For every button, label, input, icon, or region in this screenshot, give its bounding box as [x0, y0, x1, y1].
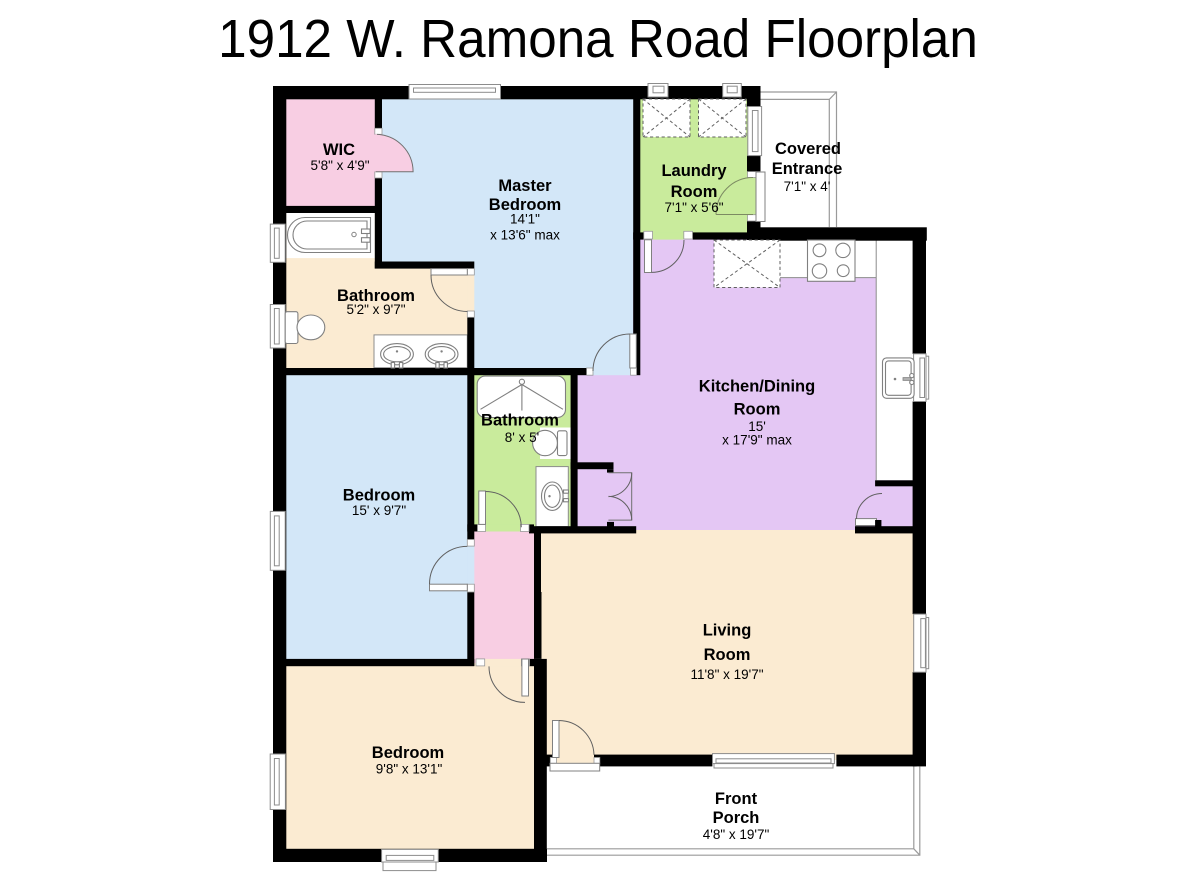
- svg-text:Laundry: Laundry: [661, 162, 727, 180]
- svg-text:Kitchen/Dining: Kitchen/Dining: [699, 378, 815, 396]
- svg-text:Bedroom: Bedroom: [343, 487, 415, 505]
- svg-text:5'8" x 4'9": 5'8" x 4'9": [310, 158, 369, 173]
- svg-text:1912 W. Ramona Road Floorplan: 1912 W. Ramona Road Floorplan: [218, 9, 978, 70]
- svg-text:5'2" x 9'7": 5'2" x 9'7": [346, 302, 405, 317]
- svg-text:x 17'9" max: x 17'9" max: [722, 433, 792, 448]
- svg-text:Room: Room: [671, 183, 718, 201]
- svg-text:15' x 9'7": 15' x 9'7": [352, 503, 406, 518]
- svg-text:7'1" x 5'6": 7'1" x 5'6": [664, 200, 723, 215]
- svg-text:Porch: Porch: [713, 809, 760, 827]
- svg-text:7'1" x 4': 7'1" x 4': [784, 179, 831, 194]
- svg-text:Bedroom: Bedroom: [372, 744, 444, 762]
- svg-text:4'8" x 19'7": 4'8" x 19'7": [703, 827, 770, 842]
- svg-text:Entrance: Entrance: [772, 160, 843, 178]
- svg-text:Living: Living: [703, 622, 752, 640]
- svg-text:Room: Room: [734, 401, 781, 419]
- svg-text:14'1": 14'1": [510, 212, 540, 227]
- svg-text:Front: Front: [715, 790, 758, 808]
- svg-text:WIC: WIC: [323, 141, 355, 159]
- svg-text:Room: Room: [704, 646, 751, 664]
- svg-text:Bathroom: Bathroom: [481, 412, 559, 430]
- svg-text:9'8" x 13'1": 9'8" x 13'1": [376, 762, 443, 777]
- svg-text:Covered: Covered: [775, 140, 841, 158]
- svg-text:8' x 5': 8' x 5': [505, 430, 539, 445]
- svg-text:11'8" x 19'7": 11'8" x 19'7": [690, 667, 763, 682]
- svg-text:Master: Master: [498, 177, 552, 195]
- svg-text:x 13'6" max: x 13'6" max: [490, 228, 560, 243]
